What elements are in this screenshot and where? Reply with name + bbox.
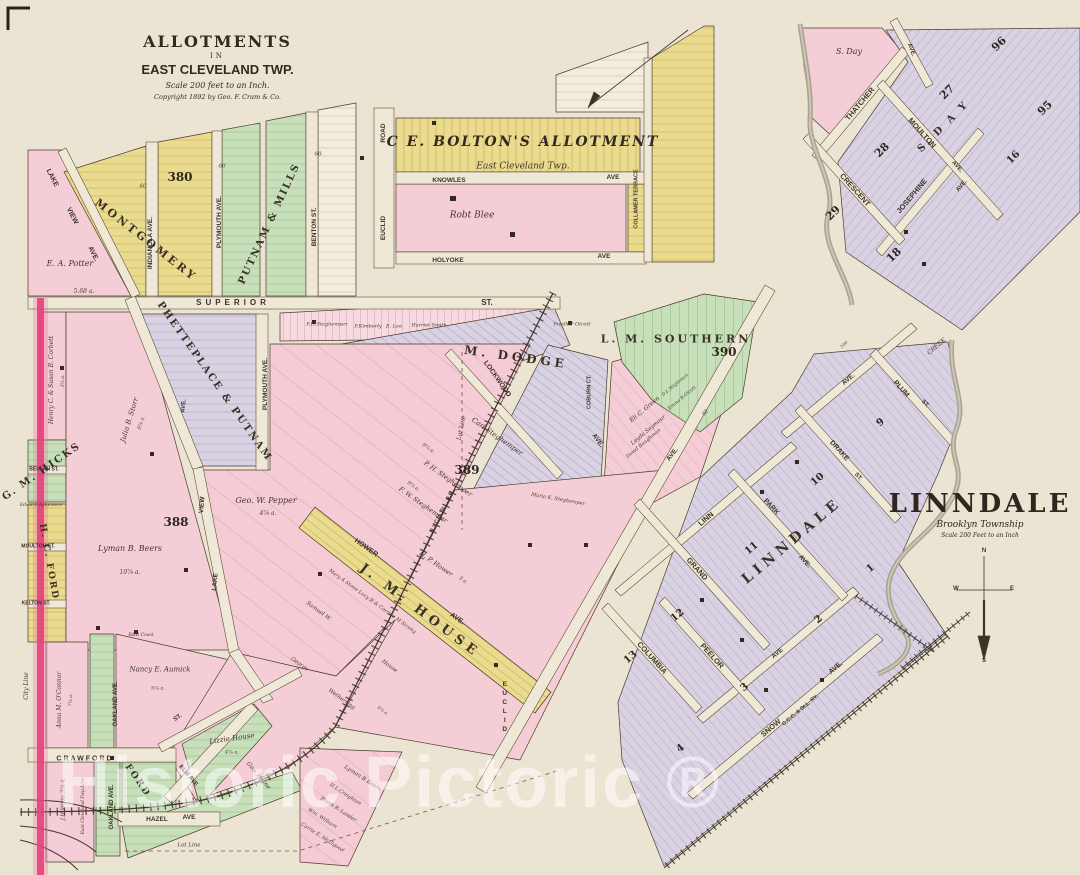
street-label: HAZEL [146,817,168,824]
map-label: 4⅞ a. [376,706,389,717]
block-number: 9 [875,417,887,429]
block-number: 380 [167,171,192,183]
street-label: SUPERIOR [196,299,270,307]
map-label: Carrie E. McElgood [300,822,345,854]
street-label: INDIANOLA AVE. [148,217,155,269]
map-label: Fredk.P Olcott [553,323,590,328]
linndale-scale: Scale 200 Feet to an Inch [874,532,1080,539]
map-label: Lizzie House [209,732,255,745]
street-label: AVE. [666,447,680,463]
map-label: Geo. W. Pepper [235,497,296,505]
street-label: AVE. [841,373,856,387]
street-label: AVE [598,254,611,261]
street-label: SNOW [760,718,783,739]
map-label: Wetherring [327,688,356,711]
map-label: Lot Line [177,843,200,849]
street-label: C.C.C. & St.L. RY. [782,694,820,727]
map-label: 7⅞ a. [70,694,75,707]
street-label: PLYMOUTH AVE. [217,196,224,248]
map-label: Julia B. Storr [120,397,140,443]
street-label: PARK [762,497,780,516]
map-label: 9⅞ a. [421,443,435,455]
street-label: ELM AVE [177,764,198,788]
block-number: 11 [743,541,760,558]
map-label-layer: LAKEVIEWAVE.E. A. Potter5.68 a.MONTGOMER… [0,0,1080,875]
map-label: E. Lee [386,325,402,330]
compass-north-label: N [982,548,986,554]
map-label: East Cleveland Twp.Line [82,778,87,835]
block-number: 29 [824,204,843,223]
map-label: EUCLID [501,681,508,735]
street-label: PLYMOUTH AVE. [263,358,270,410]
map-label: Henry C. & Susan B. Corbett [49,336,55,424]
street-label: AVE. [906,43,916,58]
block-number: 28 [873,141,892,160]
linndale-subtitle: Brooklyn Township [874,520,1080,530]
map-label: Lyman B. Beers [98,545,162,553]
street-label: AVE [771,647,785,660]
map-label: Lot Line [456,415,467,441]
map-label: 4⅞ a. [225,751,239,756]
street-label: COBURN CT. [587,375,593,409]
map-label: Lyman B Beers [343,765,381,793]
map-label: Geo. Payne [245,761,271,791]
sheet-title: ALLOTMENTS [110,32,325,51]
street-label: THATCHER [844,86,876,122]
block-number: 16 [1006,150,1023,167]
block-number: 10 [809,472,826,489]
map-label: 9⅞ a. [138,415,147,430]
block-number: 2 [813,614,825,626]
block-number: 12 [669,608,686,625]
map-label: 5 a. [458,576,469,585]
street-label: LAKE [45,168,60,188]
sheet-title-in: IN [110,52,325,60]
street-label: AVE. [180,399,187,413]
map-label: J.H.Wade 2⅞ a. [61,778,67,821]
block-number: 18 [885,246,904,265]
street-label: GRAND [685,556,709,581]
street-label: DRAKE [828,439,850,462]
street-label: KELTON ST. [22,602,51,607]
linndale-title-text: LINNDALE [874,489,1080,519]
map-label: 60 [219,164,226,170]
compass-south-label: S [982,658,986,664]
street-label: AVE. [828,660,845,676]
street-label: BENTON ST. [312,208,319,247]
map-label: Carl Steghemper [470,417,524,458]
map-label: Maria K. Steghemper [531,493,586,507]
street-label: EUCLID [381,216,388,240]
map-label: 60 [315,152,322,158]
map-label: Harriet Smith [411,324,446,329]
map-label: 100 [840,342,849,351]
sheet-scale: Scale 200 feet to an Inch. [110,81,325,90]
map-label: CREEK [927,338,948,357]
street-label: OAKLAND AVE. [113,682,119,727]
map-label: 80 [702,409,710,417]
street-label: LOCKWOOD [482,360,512,399]
bolton-allotment-title: C E. BOLTON'S ALLOTMENT [387,135,660,149]
street-label: COLLAMER TERRACE [634,169,640,228]
block-number: 4 [675,743,687,755]
sheet-title-block: ALLOTMENTS IN EAST CLEVELAND TWP. Scale … [110,32,325,101]
allotment-label: L. M. SOUTHERN [601,334,752,345]
map-label: Nancy E. Aumick [129,667,190,674]
block-number: 13 [622,650,639,667]
street-label: BEULAH ST. [29,468,58,473]
street-label: CRAWFORD [56,756,113,763]
atlas-sheet: LAKEVIEWAVE.E. A. Potter5.68 a.MONTGOMER… [0,0,1080,875]
block-number: 96 [990,35,1009,54]
street-label: COLUMBIA [636,640,669,675]
street-label: OAKLAND AVE. [109,785,115,830]
map-label: 10⅞ a. [120,570,141,576]
block-number: 3 [739,682,751,694]
map-label: Edward Bakemore [20,504,62,509]
street-label: AVE. [950,160,964,174]
block-number: 389 [454,464,479,476]
map-label: H. P. Hower [418,550,454,578]
street-label: ST. [920,399,930,409]
map-label: F.H.Steghemper [306,323,347,328]
street-label: VIEW [65,206,79,225]
block-number: 390 [711,346,736,358]
compass-east-label: E [1010,586,1014,592]
sheet-copyright: Copyright 1892 by Geo. F. Cram & Co. [110,93,325,101]
map-label: Anna M. O'Connor [57,672,63,728]
allotment-label: M. DODGE [464,344,569,370]
allotment-label: PHETTEPLACE & PUTNAM [155,300,273,463]
map-label: F.Kimberly [354,325,381,330]
sheet-subtitle: EAST CLEVELAND TWP. [110,62,325,77]
allotment-label: FORD [123,763,152,799]
street-label: AVE [183,815,196,822]
map-label: 3⅞ a. [62,375,67,388]
block-number: 95 [1036,99,1055,118]
street-label: PEELOR [699,642,725,670]
street-label: KNOWLES [432,178,465,185]
map-label: 5.68 a. [74,289,95,295]
street-label: HOLYOKE [432,258,464,265]
street-label: LINN [697,511,715,528]
map-label: House [380,660,398,675]
street-label: PLUM [892,379,910,398]
street-label: AVE. [590,433,604,449]
map-label: Samuel W. [305,601,332,623]
map-label: R&R Coast [128,634,153,639]
map-label: 5⅞ a. [151,687,165,692]
block-number: 388 [163,516,188,528]
street-label: ST. [853,472,863,482]
street-label: VIEW [199,496,207,513]
map-label: George [289,657,309,673]
map-label: S. Day [836,48,862,56]
map-label: City Line [24,672,30,700]
allotment-label: S. D A Y [916,99,971,154]
block-number: 1 [865,563,877,575]
street-label: AVE. [797,554,812,569]
street-label: LAKE [212,573,220,591]
bolton-allotment-subtitle: East Cleveland Twp. [476,163,569,172]
block-number: 27 [938,83,957,102]
allotment-label: H. C. FORD [37,523,59,601]
street-label: AVE [607,175,620,182]
street-label: HOWER [353,537,379,558]
compass-west-label: W [953,586,959,592]
street-label: AVE. [955,179,968,193]
linndale-title-block: LINNDALE Brooklyn Township Scale 200 Fee… [874,489,1080,539]
map-label: 60 [140,184,147,190]
street-label: ST. [173,713,184,723]
allotment-label: PUTNAM & MILLS [237,162,302,286]
street-label: CRESCENT [838,172,871,208]
map-label: 4⅞ a. [259,511,276,517]
map-label: E. A. Potter [47,260,94,268]
street-label: ST. [481,299,493,307]
street-label: JOSEPHINE [895,177,928,215]
map-label: Robt Blee [450,212,495,221]
